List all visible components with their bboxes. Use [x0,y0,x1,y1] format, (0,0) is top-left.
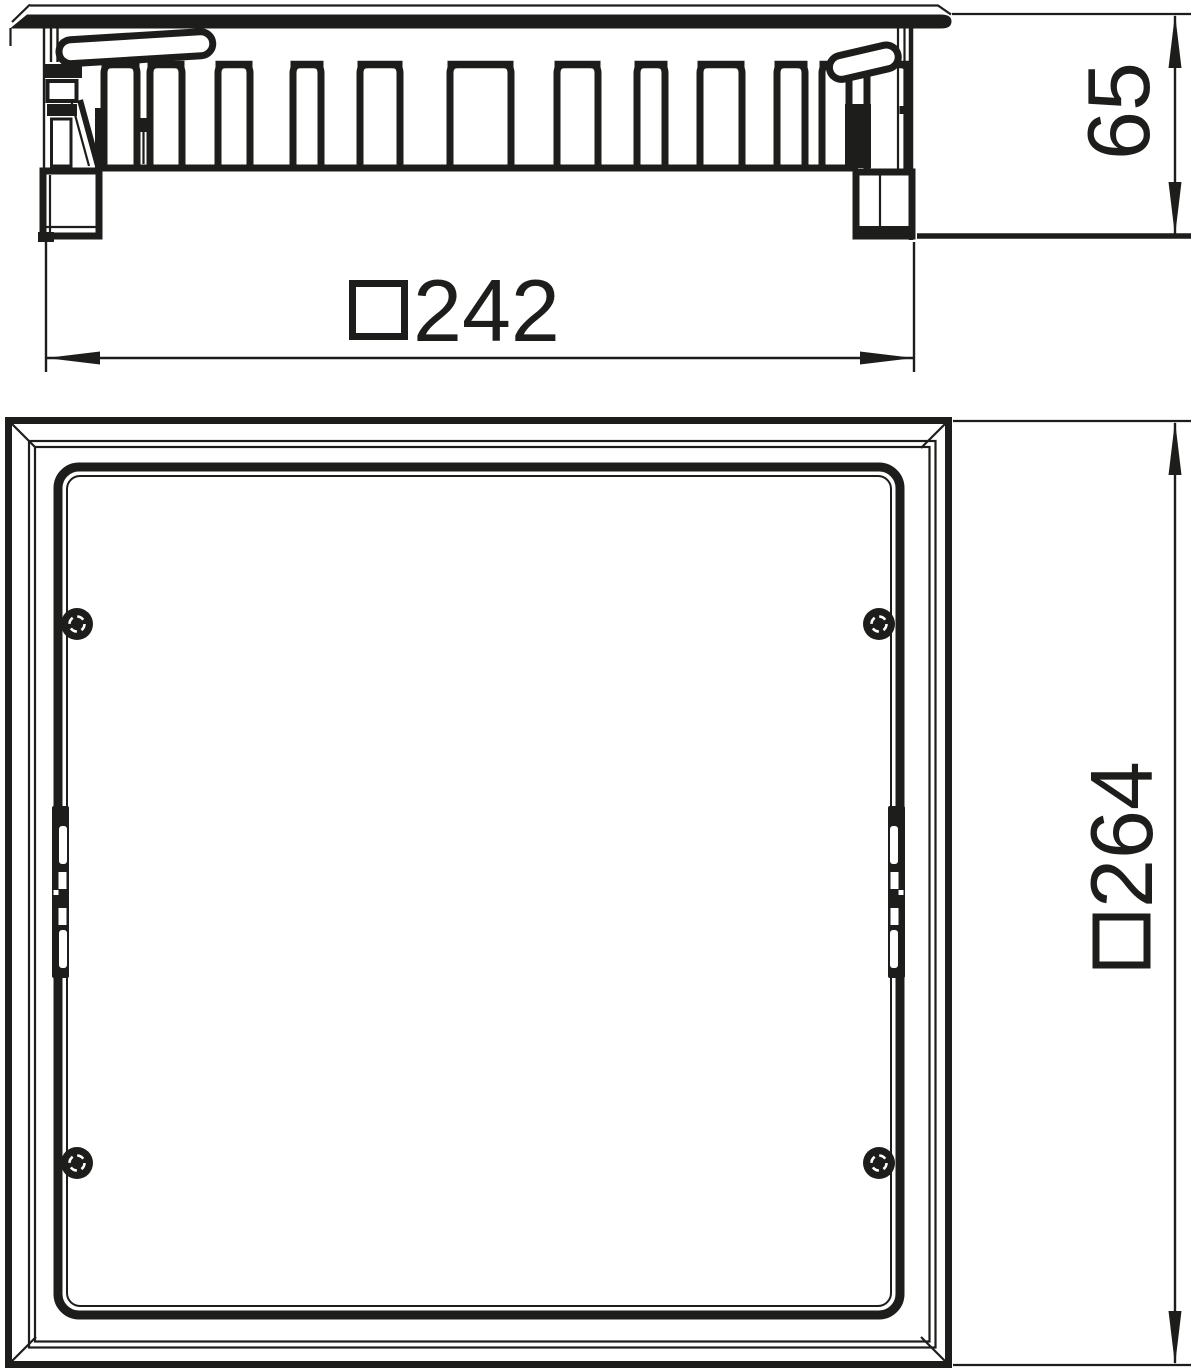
channel-tick [900,106,910,114]
tab [777,65,805,169]
tab [150,65,182,169]
foot-base [856,226,912,236]
cover-lid [58,467,900,1315]
slot-bridge [134,118,153,132]
plan-view: 264 [8,420,1191,1365]
tab [450,65,511,169]
tab [293,65,321,169]
dim-outer: 264 [953,421,1191,1365]
latch-slot [890,930,898,968]
dim-height-value: 65 [1069,62,1168,160]
arrowhead-up-icon [1169,421,1182,475]
tab [360,65,400,169]
latch-slot [59,826,67,864]
arrowhead-down-icon [1169,182,1182,236]
square-dimension-symbol [353,284,405,337]
latch-slot [890,826,898,864]
dim-width-value: 242 [413,261,560,360]
latch-rib [95,108,104,168]
screw [61,1147,93,1179]
arrowhead-up-icon [1169,14,1182,68]
screw [61,608,93,640]
screw [863,608,895,640]
arrowhead-down-icon [1169,1311,1182,1365]
arrowhead-right-icon [860,352,914,365]
tab [867,65,908,173]
latch-block [43,64,82,78]
side-section-view: 65 242 [10,5,1191,373]
tab [557,65,598,169]
lid-border [58,467,900,1315]
dim-height: 65 [917,14,1191,236]
technical-drawing: 65 242 [0,0,1201,1372]
tab [700,65,742,169]
tab [637,65,665,169]
square-dimension-symbol [1096,917,1147,965]
technical-drawing-page: 65 242 [0,0,1201,1372]
latch-dot [899,890,904,895]
arrowhead-left-icon [46,352,100,365]
castellated-frame [97,65,911,173]
slot-bridge [845,104,871,168]
dim-outer-value: 264 [1072,761,1171,908]
tab [104,65,137,169]
flange-bar [10,15,952,29]
latch-slot [59,908,67,925]
latch-slot [59,930,67,968]
latch-slot [891,872,899,889]
screw [863,1147,895,1179]
latch-window [48,81,77,101]
left-release-lever [58,31,213,64]
latch-channel [52,119,72,166]
dim-width: 242 [46,242,914,372]
left-latch [52,806,69,978]
flange-top-edge [30,6,951,15]
latch-dot [54,890,59,895]
tab [218,65,250,169]
right-latch [888,806,905,978]
latch-slot [59,872,67,889]
latch-slot [891,908,899,925]
foot-tip [38,232,54,242]
